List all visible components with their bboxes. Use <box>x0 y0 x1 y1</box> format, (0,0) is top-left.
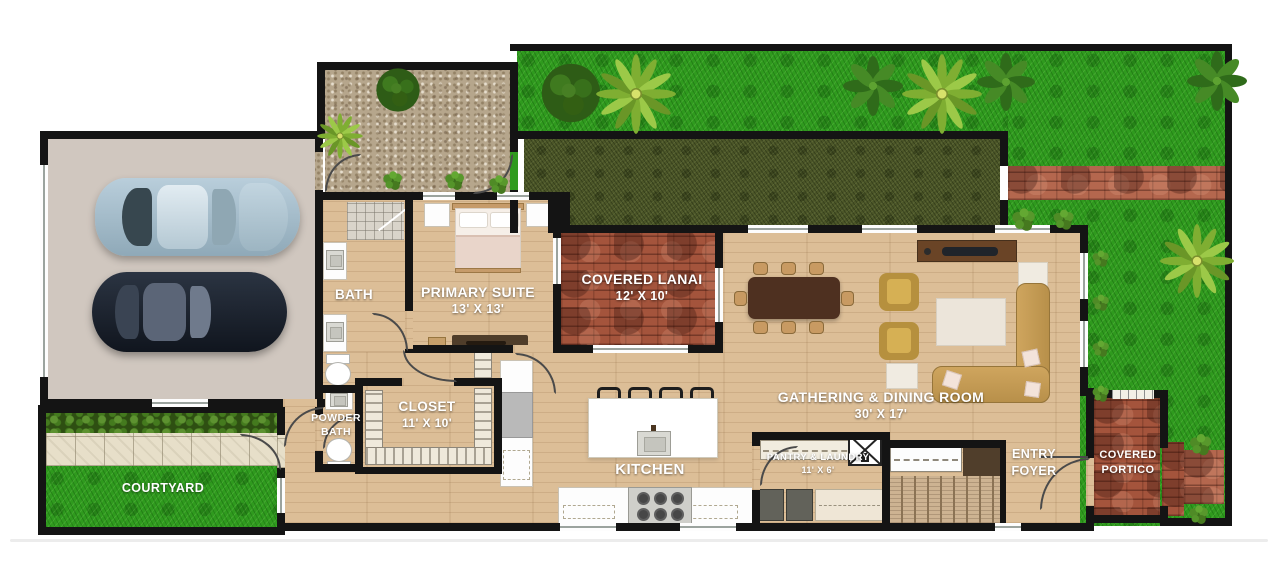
dryer <box>786 489 813 521</box>
dining-chair <box>809 321 824 334</box>
page-shadow-line <box>10 539 1268 542</box>
label-text: PANTRY & LAUNDRY <box>767 452 869 463</box>
door-opening <box>513 345 553 353</box>
portico-steps <box>1112 390 1154 399</box>
armchair-seat <box>887 279 911 304</box>
armchair <box>879 273 919 311</box>
car-rear-window <box>122 188 153 246</box>
label-text: COURTYARD <box>122 481 204 495</box>
palm-icon <box>316 112 364 160</box>
room-label-powder-bath: POWDER BATH <box>310 412 362 440</box>
hedge-strip <box>524 139 1000 225</box>
sink <box>330 393 348 407</box>
dining-chair <box>781 262 796 275</box>
staircase <box>888 476 1002 523</box>
dining-chair <box>753 262 768 275</box>
room-label-gathering-dining: GATHERING & DINING ROOM 30' X 17' <box>756 388 1006 423</box>
label-dims: 13' X 13' <box>398 301 558 318</box>
label-text: CLOSET <box>398 399 455 414</box>
wall <box>494 378 502 474</box>
pantry-counter <box>815 489 884 521</box>
burner <box>671 508 684 521</box>
cabinet-outline <box>688 505 738 519</box>
shrub-icon <box>440 166 470 196</box>
burner <box>654 508 667 521</box>
room-label-bath: BATH <box>323 286 385 304</box>
label-text: COVERED PORTICO <box>1099 449 1156 476</box>
shrub-icon <box>1088 246 1114 272</box>
car-dark <box>92 272 287 352</box>
bar-stool <box>597 387 621 398</box>
dining-chair <box>734 291 747 306</box>
shrub-icon <box>1088 381 1114 407</box>
dining-chair <box>809 262 824 275</box>
cabinet-outline <box>563 505 615 519</box>
window <box>560 523 616 531</box>
car-windshield <box>212 189 237 245</box>
window <box>553 238 561 284</box>
wall <box>882 432 890 531</box>
wall <box>752 432 890 440</box>
wall <box>1080 225 1088 394</box>
shower <box>347 202 404 240</box>
shelf-line <box>894 459 958 461</box>
car-hood <box>239 183 288 252</box>
label-text: POWDER BATH <box>311 412 361 438</box>
island-sink <box>637 431 671 456</box>
wall <box>40 131 325 139</box>
palm-icon <box>594 52 678 136</box>
refrigerator <box>500 392 533 438</box>
stair-shelf <box>890 446 962 472</box>
shrub-icon <box>1048 204 1080 236</box>
wall <box>510 44 1232 51</box>
armchair <box>879 322 919 360</box>
room-label-pantry-laundry: PANTRY & LAUNDRY 11' X 6' <box>752 452 884 476</box>
bar-stool <box>659 387 683 398</box>
dining-chair <box>841 291 854 306</box>
shrub-icon <box>1088 336 1114 362</box>
room-label-primary-suite: PRIMARY SUITE 13' X 13' <box>398 283 558 318</box>
shrub-icon <box>1184 500 1214 530</box>
shrub-icon <box>1006 202 1042 238</box>
car-rear-window <box>115 285 138 339</box>
shower-door <box>378 209 406 232</box>
burner <box>671 492 684 505</box>
wall <box>890 440 1005 448</box>
bar-stool <box>690 387 714 398</box>
bar-stool <box>628 387 652 398</box>
room-label-courtyard: COURTYARD <box>88 480 238 497</box>
shrub-icon <box>1184 428 1218 462</box>
label-dims: 11' X 6' <box>752 465 884 477</box>
window <box>862 225 917 233</box>
wall <box>355 467 502 474</box>
car-roof <box>143 283 186 341</box>
leaf-plant-icon <box>976 52 1036 112</box>
console-item <box>924 248 931 255</box>
window <box>277 478 285 513</box>
bed-blanket <box>456 235 520 272</box>
sink <box>326 322 344 342</box>
bed-footboard <box>455 268 521 273</box>
armchair-seat <box>887 328 911 353</box>
bush-icon <box>372 64 424 116</box>
palm-icon <box>1158 222 1236 300</box>
washer <box>757 489 784 521</box>
window <box>1080 253 1088 299</box>
faucet <box>651 425 656 431</box>
room-label-covered-lanai: COVERED LANAI 12' X 10' <box>567 270 717 305</box>
tv <box>942 247 998 256</box>
dining-chair <box>753 321 768 334</box>
window <box>748 225 808 233</box>
burner <box>654 492 667 505</box>
dining-table <box>748 277 840 319</box>
label-text: GATHERING & DINING ROOM <box>778 389 985 405</box>
label-dims: 11' X 10' <box>372 416 482 432</box>
throw-pillow <box>1022 349 1041 368</box>
shrub-icon <box>1088 290 1114 316</box>
dining-chair <box>781 321 796 334</box>
courtyard-grass <box>46 466 277 527</box>
toilet-bowl <box>325 362 351 386</box>
tv-console <box>917 240 1017 262</box>
leaf-plant-icon <box>1186 50 1248 112</box>
brick-path <box>1008 166 1225 200</box>
room-label-closet: CLOSET 11' X 10' <box>372 398 482 432</box>
wall <box>1160 390 1168 448</box>
palm-icon <box>900 52 984 136</box>
label-text: COVERED LANAI <box>581 271 702 287</box>
room-label-covered-portico: COVERED PORTICO <box>1096 448 1160 477</box>
wall <box>38 527 285 535</box>
label-text: KITCHEN <box>615 461 684 478</box>
window <box>995 523 1021 531</box>
label-dims: 12' X 10' <box>567 288 717 305</box>
toilet <box>323 354 353 387</box>
wall <box>1000 131 1008 166</box>
floor-plan: BATH PRIMARY SUITE 13' X 13' COVERED LAN… <box>0 0 1279 579</box>
label-text: PRIMARY SUITE <box>421 284 535 300</box>
room-label-kitchen: KITCHEN <box>585 460 715 480</box>
sink <box>326 250 344 270</box>
courtyard-hedgerow <box>46 413 277 433</box>
label-text: BATH <box>335 287 373 302</box>
wall <box>38 405 46 535</box>
side-table <box>886 363 918 389</box>
leaf-plant-icon <box>842 55 904 117</box>
hall-shelf <box>474 352 492 380</box>
car-windshield <box>190 286 211 337</box>
counter-line <box>819 505 880 506</box>
shrub-icon <box>484 170 514 200</box>
closet-shelves-bottom <box>365 447 492 465</box>
room-label-entry-foyer: ENTRY FOYER <box>1004 446 1064 479</box>
portico-side-walk <box>1162 442 1184 516</box>
nightstand <box>424 203 450 227</box>
garage-door <box>40 165 48 377</box>
wall <box>1094 515 1166 523</box>
pillow <box>459 212 488 228</box>
stove <box>628 487 692 524</box>
window <box>680 523 736 531</box>
label-dims: 30' X 17' <box>756 406 1006 423</box>
throw-pillow <box>1024 381 1041 398</box>
sliding-door <box>593 345 688 353</box>
label-text: ENTRY FOYER <box>1011 447 1056 478</box>
area-rug <box>936 298 1006 346</box>
burner <box>637 508 650 521</box>
shrub-icon <box>378 166 408 196</box>
wall <box>510 62 518 233</box>
cabinet-outline <box>503 450 530 480</box>
burner <box>637 492 650 505</box>
car-roof <box>157 185 208 249</box>
window <box>1080 321 1088 367</box>
car-light <box>95 178 300 256</box>
door-opening <box>283 399 317 407</box>
window <box>152 399 208 407</box>
